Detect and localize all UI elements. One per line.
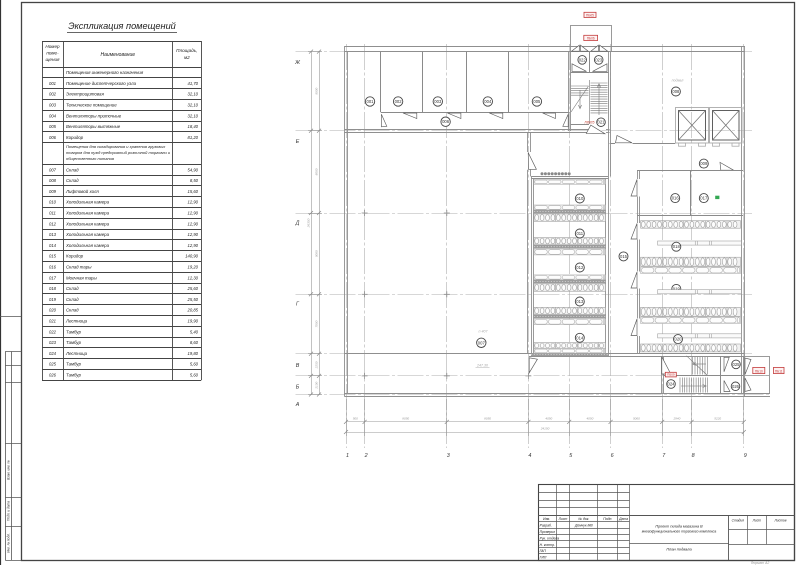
svg-text:Лист: Лист (752, 518, 762, 522)
svg-text:Наименование: Наименование (101, 52, 136, 58)
svg-text:ПБ11: ПБ11 (775, 369, 783, 373)
svg-text:Помещения инженерного назначен: Помещения инженерного назначения (66, 70, 144, 75)
svg-text:3: 3 (447, 453, 450, 459)
svg-text:Склад: Склад (66, 297, 79, 302)
svg-text:019: 019 (49, 297, 57, 302)
svg-text:Изм.: Изм. (543, 517, 550, 521)
svg-text:005: 005 (49, 124, 57, 129)
svg-text:Рук. отдела: Рук. отдела (540, 536, 560, 540)
svg-text:008: 008 (49, 178, 57, 183)
svg-text:19,90: 19,90 (188, 319, 199, 324)
svg-text:Д: Д (295, 220, 300, 226)
svg-text:022: 022 (579, 57, 587, 62)
svg-text:Склад: Склад (66, 167, 79, 172)
svg-text:Электрощитовая: Электрощитовая (66, 92, 104, 97)
svg-text:32,10: 32,10 (188, 103, 199, 108)
svg-text:020: 020 (49, 308, 57, 313)
svg-text:Холодильная камера: Холодильная камера (65, 243, 110, 248)
svg-text:Холодильная камера: Холодильная камера (65, 200, 110, 205)
svg-text:015: 015 (620, 254, 628, 259)
svg-text:002: 002 (49, 92, 57, 97)
svg-text:4: 4 (528, 453, 531, 459)
svg-text:Б: Б (296, 384, 300, 390)
svg-text:5060: 5060 (633, 416, 640, 420)
svg-text:5,60: 5,60 (190, 373, 199, 378)
svg-text:9000: 9000 (315, 87, 319, 94)
svg-text:Коридор: Коридор (66, 254, 84, 259)
svg-text:В: В (296, 363, 300, 369)
svg-text:004: 004 (49, 113, 57, 118)
svg-text:016: 016 (672, 196, 680, 201)
svg-text:011: 011 (576, 231, 583, 236)
svg-text:013: 013 (576, 299, 584, 304)
svg-text:Ж: Ж (294, 60, 301, 66)
svg-text:Проверил: Проверил (540, 530, 556, 534)
svg-text:Лестница: Лестница (65, 351, 88, 356)
svg-text:004: 004 (484, 99, 492, 104)
svg-text:013: 013 (49, 232, 57, 237)
svg-text:003: 003 (49, 103, 57, 108)
svg-text:014: 014 (49, 243, 57, 248)
svg-text:Формат А2: Формат А2 (751, 561, 770, 565)
svg-text:Лестница: Лестница (65, 319, 88, 324)
svg-text:26350: 26350 (307, 218, 311, 228)
svg-text:8050: 8050 (402, 416, 409, 420)
svg-text:5,40: 5,40 (190, 329, 199, 334)
svg-text:Помещения для складирования и: Помещения для складирования и хранения г… (66, 144, 166, 149)
svg-text:Холодильная камера: Холодильная камера (65, 221, 110, 226)
svg-text:140,90: 140,90 (185, 254, 198, 259)
svg-text:017: 017 (700, 196, 708, 201)
svg-text:2250: 2250 (315, 361, 319, 369)
svg-text:9: 9 (744, 453, 747, 459)
svg-text:12,30: 12,30 (188, 275, 199, 280)
svg-text:006: 006 (49, 135, 57, 140)
svg-text:4050: 4050 (586, 416, 593, 420)
svg-text:5220: 5220 (714, 416, 721, 420)
svg-text:Моечная тары: Моечная тары (66, 275, 97, 280)
svg-text:021: 021 (49, 319, 56, 324)
svg-text:Н. контр.: Н. контр. (540, 543, 555, 547)
svg-text:15,60: 15,60 (188, 189, 199, 194)
svg-text:32,10: 32,10 (188, 92, 199, 97)
svg-text:Экспликация помещений: Экспликация помещений (68, 21, 176, 31)
svg-text:2: 2 (364, 453, 368, 459)
svg-text:8000: 8000 (315, 168, 319, 175)
svg-text:п 407: п 407 (479, 329, 489, 333)
svg-text:010: 010 (49, 200, 57, 205)
svg-text:015: 015 (49, 254, 57, 259)
svg-text:19,20: 19,20 (188, 265, 199, 270)
svg-text:Взам. инв. №: Взам. инв. № (7, 460, 11, 480)
svg-text:Коридор: Коридор (66, 135, 84, 140)
svg-text:001: 001 (49, 81, 56, 86)
svg-text:007: 007 (49, 167, 57, 172)
svg-text:247.30: 247.30 (476, 363, 488, 367)
svg-text:016: 016 (49, 265, 57, 270)
svg-text:Техническое помещение: Техническое помещение (66, 103, 117, 108)
svg-text:подвал: подвал (672, 79, 684, 83)
svg-text:ГИП: ГИП (540, 556, 547, 560)
svg-text:009: 009 (700, 161, 708, 166)
svg-text:План подвала: План подвала (666, 547, 692, 552)
svg-text:012: 012 (49, 221, 57, 226)
svg-text:ПБ09: ПБ09 (667, 373, 675, 377)
svg-text:А: А (295, 402, 300, 408)
svg-text:Тамбур: Тамбур (66, 329, 82, 334)
svg-text:Инв. № подл.: Инв. № подл. (7, 533, 11, 553)
svg-text:026: 026 (732, 384, 740, 389)
svg-text:Склад: Склад (66, 286, 79, 291)
svg-text:Холодильная камера: Холодильная камера (65, 211, 110, 216)
svg-text:м2: м2 (184, 55, 190, 60)
svg-text:7000: 7000 (315, 320, 319, 327)
svg-text:25,50: 25,50 (187, 297, 199, 302)
svg-text:1: 1 (346, 453, 349, 459)
svg-text:Лифтовой холл: Лифтовой холл (65, 189, 99, 194)
svg-text:Помещение диспетчерского узла: Помещение диспетчерского узла (66, 81, 137, 86)
svg-text:12,90: 12,90 (188, 232, 199, 237)
svg-text:Лист: Лист (558, 517, 568, 521)
svg-text:24150: 24150 (540, 427, 550, 431)
svg-text:Разраб.: Разраб. (540, 524, 552, 528)
svg-text:Проект склада магазина В: Проект склада магазина В (655, 524, 703, 528)
svg-text:8: 8 (692, 453, 695, 459)
svg-text:товаров для нужд предприятий р: товаров для нужд предприятий розничной т… (66, 150, 171, 155)
svg-text:Номер: Номер (45, 44, 60, 49)
svg-text:19,80: 19,80 (188, 351, 199, 356)
svg-text:общественного питания: общественного питания (66, 156, 115, 161)
svg-text:Тамбур: Тамбур (66, 340, 82, 345)
svg-text:Подп. и дата: Подп. и дата (7, 501, 11, 521)
svg-text:Демчук МВ: Демчук МВ (574, 524, 593, 528)
svg-text:8050: 8050 (484, 416, 491, 420)
svg-text:12,90: 12,90 (188, 243, 199, 248)
svg-text:003: 003 (434, 99, 442, 104)
svg-text:006: 006 (442, 119, 450, 124)
svg-text:Дата: Дата (618, 517, 628, 521)
svg-text:2940: 2940 (672, 416, 680, 420)
svg-text:25,60: 25,60 (187, 286, 199, 291)
svg-text:20,85: 20,85 (187, 308, 199, 313)
svg-text:Холодильная камера: Холодильная камера (65, 232, 110, 237)
svg-text:Листов: Листов (773, 518, 786, 522)
svg-text:5,60: 5,60 (190, 362, 199, 367)
svg-text:005: 005 (533, 99, 541, 104)
svg-text:многофункционального торгового: многофункционального торгового комплекса (642, 530, 717, 534)
svg-text:4050: 4050 (545, 416, 552, 420)
svg-text:Тамбур: Тамбур (66, 362, 82, 367)
svg-text:12,90: 12,90 (188, 200, 199, 205)
svg-text:020: 020 (675, 337, 683, 342)
svg-text:012: 012 (576, 265, 584, 270)
svg-text:017: 017 (49, 275, 57, 280)
svg-text:009: 009 (49, 189, 57, 194)
svg-text:8,50: 8,50 (190, 178, 199, 183)
svg-text:12,90: 12,90 (188, 221, 199, 226)
svg-text:№ док.: № док. (578, 517, 589, 521)
svg-text:Склад: Склад (66, 308, 79, 313)
svg-text:023: 023 (595, 57, 603, 62)
svg-text:011: 011 (49, 211, 56, 216)
svg-text:Е: Е (296, 139, 300, 145)
svg-text:023: 023 (49, 340, 57, 345)
svg-text:Склад тары: Склад тары (66, 265, 92, 270)
svg-text:001: 001 (367, 99, 375, 104)
svg-text:024: 024 (668, 382, 676, 387)
svg-text:010: 010 (576, 196, 584, 201)
svg-text:026: 026 (49, 373, 57, 378)
svg-text:54,90: 54,90 (188, 167, 199, 172)
svg-text:6: 6 (611, 453, 614, 459)
svg-text:Вентиляторы вытяжные: Вентиляторы вытяжные (66, 124, 121, 129)
svg-text:9000: 9000 (315, 250, 319, 257)
svg-text:41,70: 41,70 (188, 81, 199, 86)
svg-text:022: 022 (49, 329, 57, 334)
svg-text:ПБ05: ПБ05 (586, 13, 594, 17)
svg-text:018: 018 (49, 286, 57, 291)
svg-text:002: 002 (395, 99, 403, 104)
svg-text:025: 025 (49, 362, 57, 367)
svg-text:8,60: 8,60 (190, 340, 199, 345)
svg-text:007: 007 (478, 340, 486, 345)
svg-text:2100: 2100 (315, 381, 319, 389)
svg-text:поме-: поме- (46, 51, 59, 56)
svg-text:014: 014 (576, 335, 584, 340)
svg-text:025: 025 (733, 362, 741, 367)
svg-text:32,10: 32,10 (188, 113, 199, 118)
svg-text:018: 018 (673, 244, 681, 249)
svg-text:024: 024 (49, 351, 57, 356)
svg-text:Стадия: Стадия (732, 518, 745, 522)
svg-text:ПБ10: ПБ10 (755, 369, 763, 373)
svg-text:ПБ06: ПБ06 (587, 36, 595, 40)
svg-text:ГАП: ГАП (540, 549, 547, 553)
svg-text:500: 500 (353, 416, 358, 420)
svg-text:Площадь,: Площадь, (176, 48, 197, 53)
svg-text:18,40: 18,40 (188, 124, 199, 129)
svg-text:021: 021 (598, 120, 606, 125)
svg-text:Тамбур: Тамбур (66, 373, 82, 378)
svg-text:008: 008 (672, 89, 680, 94)
svg-text:81,20: 81,20 (188, 135, 199, 140)
svg-text:ПБ05: ПБ05 (585, 119, 596, 124)
svg-text:щения: щения (45, 57, 60, 62)
svg-text:12,90: 12,90 (188, 211, 199, 216)
svg-text:Склад: Склад (66, 178, 79, 183)
svg-text:Вентиляторы приточные: Вентиляторы приточные (66, 113, 122, 118)
svg-text:Подп.: Подп. (603, 517, 612, 521)
